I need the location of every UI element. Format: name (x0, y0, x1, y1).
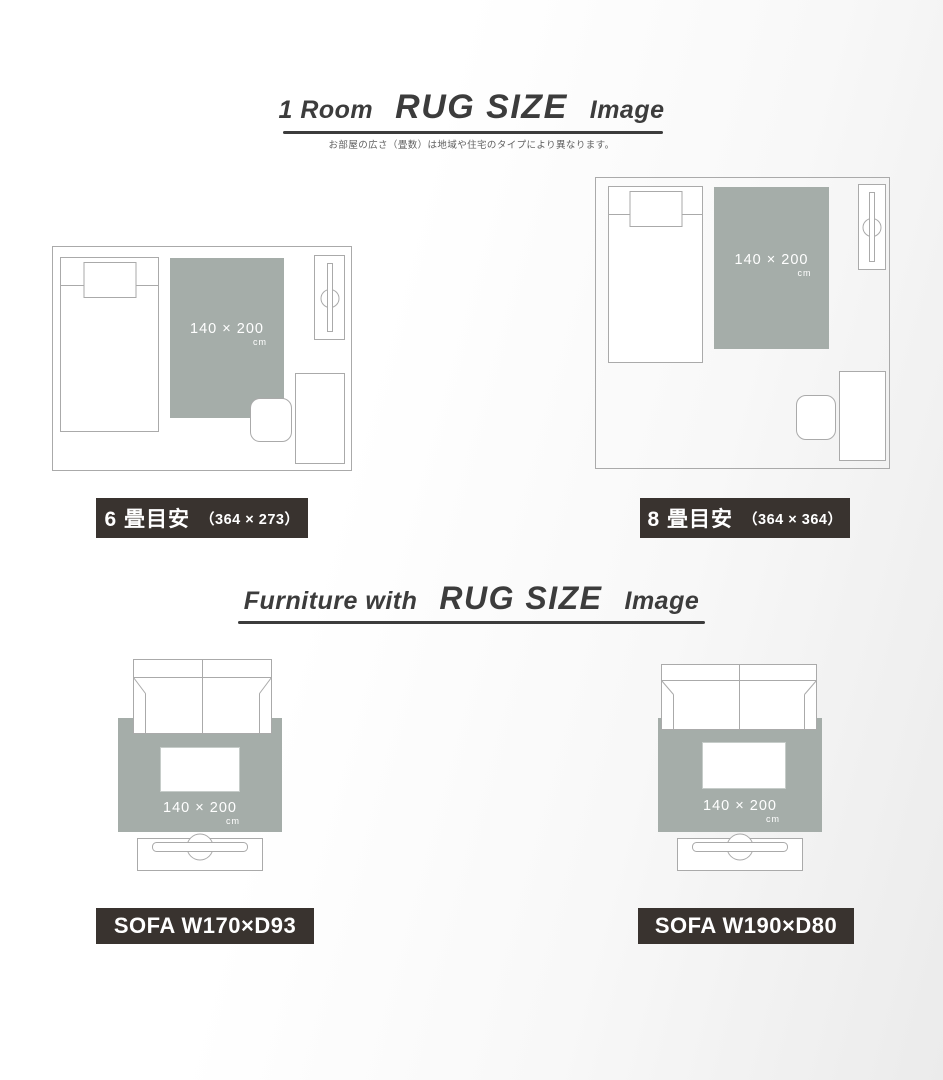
sofa170-size-label: SOFA W170×D93 (96, 908, 314, 944)
room-6jo-label-dims: （364 × 273） (200, 508, 299, 529)
rug-size-value: 140 × 200 (190, 321, 264, 337)
rug: 140 × 200 cm (714, 187, 829, 349)
chair (250, 398, 292, 442)
section1-title: 1 Room RUG SIZE Image (0, 88, 943, 127)
section2-title-underline (238, 621, 705, 624)
section2-title: Furniture with RUG SIZE Image (0, 580, 943, 617)
chair (796, 395, 836, 440)
rug-size-unit: cm (747, 269, 862, 279)
rug-size-unit: cm (151, 817, 315, 827)
sofa170-label-text: SOFA W170×D93 (114, 913, 296, 939)
section1-subtitle: お部屋の広さ（畳数）は地域や住宅のタイプにより異なります。 (0, 137, 943, 151)
sofa190-label-text: SOFA W190×D80 (655, 913, 837, 939)
low-table (160, 747, 240, 792)
section2-title-prefix: Furniture with (244, 587, 418, 616)
rug: 140 × 200 cm (118, 718, 282, 832)
rug-size-text: 140 × 200 cm (118, 799, 282, 827)
sofa190-diagram: 140 × 200 cm (650, 655, 822, 873)
tv-board (677, 828, 803, 872)
section2-title-suffix: Image (625, 587, 700, 616)
low-table (702, 742, 786, 789)
mirror-bar (869, 192, 875, 262)
desk (295, 373, 345, 464)
bed (608, 186, 703, 363)
rug-size-value: 140 × 200 (703, 798, 777, 814)
sofa (133, 659, 272, 734)
section2-title-main: RUG SIZE (439, 580, 602, 617)
section1-title-suffix: Image (590, 96, 665, 125)
section1-title-underline (283, 131, 663, 134)
pillow (629, 191, 682, 227)
sofa (661, 664, 817, 730)
rug-size-value: 140 × 200 (735, 252, 809, 268)
room-8jo-diagram: 140 × 200 cm (595, 177, 890, 469)
room-6jo-label-text: 6 畳目安 (105, 503, 191, 533)
desk (839, 371, 886, 461)
sofa170-diagram: 140 × 200 cm (115, 655, 287, 873)
bed (60, 257, 159, 432)
pillow (83, 262, 136, 298)
wardrobe-mirror (858, 184, 886, 270)
room-6jo-size-label: 6 畳目安 （364 × 273） (96, 498, 308, 538)
room-8jo-size-label: 8 畳目安 （364 × 364） (640, 498, 850, 538)
rug-size-text: 140 × 200 cm (170, 320, 284, 348)
room-8jo-label-dims: （364 × 364） (743, 508, 842, 529)
rug-size-unit: cm (691, 815, 855, 825)
sofa190-size-label: SOFA W190×D80 (638, 908, 854, 944)
mirror-bar (327, 263, 333, 332)
wardrobe-mirror (314, 255, 345, 340)
section1-title-main: RUG SIZE (395, 88, 568, 127)
room-6jo-diagram: 140 × 200 cm (52, 246, 352, 471)
product-info-image: 1 Room RUG SIZE Image お部屋の広さ（畳数）は地域や住宅のタ… (0, 0, 943, 1080)
rug: 140 × 200 cm (170, 258, 284, 418)
rug-size-unit: cm (203, 338, 317, 348)
rug-size-text: 140 × 200 cm (658, 797, 822, 825)
section1-title-prefix: 1 Room (278, 96, 373, 125)
tv-board (137, 828, 263, 872)
rug: 140 × 200 cm (658, 718, 822, 832)
rug-size-text: 140 × 200 cm (714, 251, 829, 279)
room-8jo-label-text: 8 畳目安 (648, 503, 734, 533)
rug-size-value: 140 × 200 (163, 800, 237, 816)
